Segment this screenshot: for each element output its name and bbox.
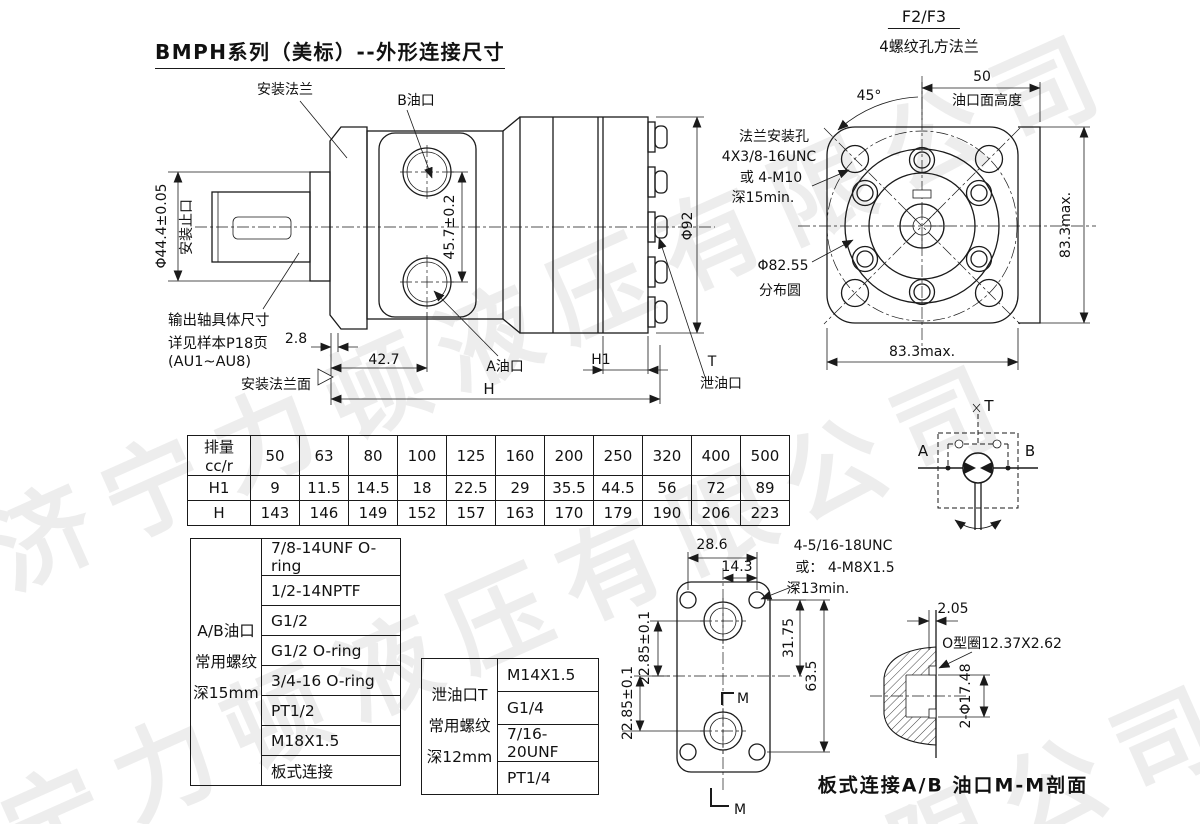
drain-table-header: 泄油口T 常用螺纹 深12mm bbox=[422, 659, 498, 795]
dim-body-diameter: Φ92 bbox=[680, 212, 696, 241]
schematic-port-t: T bbox=[984, 397, 993, 415]
label-plate-thread-3: 深13min. bbox=[787, 578, 850, 598]
label-shaft-note-3: (AU1~AU8) bbox=[168, 354, 251, 370]
end-cover-bolts bbox=[648, 122, 667, 327]
dim-port-face-50: 50 bbox=[973, 69, 991, 85]
label-mount-hole-1: 法兰安装孔 bbox=[739, 126, 809, 146]
drawing-page: 济宁力顿液压有限公司 济宁力顿液压有限公司 济宁力顿液压有限公司 济宁力顿液压有… bbox=[0, 0, 1200, 824]
drawing-canvas bbox=[0, 0, 1200, 824]
table-row: A/B油口 常用螺纹 深15mm 7/8-14UNF O-ring bbox=[191, 539, 401, 576]
dim-port-upper: 22.85±0.1 bbox=[637, 611, 653, 685]
dim-flange-thickness: 2.8 bbox=[285, 331, 307, 347]
table-row: 排量 cc/r 50 63 80 100 125 160 200 250 320… bbox=[188, 436, 790, 476]
drain-port-thread-table: 泄油口T 常用螺纹 深12mm M14X1.5 G1/4 7/16-20UNF … bbox=[421, 658, 599, 795]
label-mount-flange: 安装法兰 bbox=[257, 79, 313, 99]
table-row: H 143 146 149 152 157 163 170 179 190 20… bbox=[188, 501, 790, 526]
label-bolt-circle: 分布圆 bbox=[759, 280, 801, 300]
header-line: 泄油口T bbox=[422, 680, 497, 711]
dim-hole-span: 28.6 bbox=[696, 537, 727, 553]
dim-port-diameter: 2-Φ17.48 bbox=[958, 663, 974, 728]
dim-flange-height: 83.3max. bbox=[1058, 192, 1074, 258]
label-mount-face: 安装法兰面 bbox=[241, 374, 311, 394]
schematic-port-a: A bbox=[918, 442, 928, 460]
label-plate-thread-2: 或： 4-M8X1.5 bbox=[795, 557, 894, 577]
dim-port-lower: 22.85±0.1 bbox=[620, 666, 636, 740]
header-line: 深15mm bbox=[191, 678, 261, 709]
label-mount-hole-2: 4X3/8-16UNC bbox=[722, 149, 816, 165]
dim-bolt-circle: Φ82.55 bbox=[757, 258, 808, 274]
label-drain-port: 泄油口 bbox=[700, 373, 742, 393]
page-title: BMPH系列（美标）--外形连接尺寸 bbox=[155, 36, 505, 69]
label-mount-hole-4: 深15min. bbox=[732, 187, 795, 207]
schematic-port-b: B bbox=[1025, 442, 1035, 460]
header-line: 常用螺纹 bbox=[191, 647, 261, 678]
section-mark-m-bottom: M bbox=[734, 802, 746, 818]
label-plate-thread-1: 4-5/16-18UNC bbox=[794, 538, 893, 554]
dim-port-offset: 14.3 bbox=[721, 559, 752, 575]
table-header: 排量 cc/r bbox=[188, 436, 251, 476]
section-mark-m-top: M bbox=[737, 691, 749, 707]
label-drain-t: T bbox=[708, 354, 717, 370]
dim-port-spacing: 45.7±0.2 bbox=[442, 194, 458, 259]
table-row: H1 9 11.5 14.5 18 22.5 29 35.5 44.5 56 7… bbox=[188, 476, 790, 501]
flange-view-subtitle: 4螺纹孔方法兰 bbox=[879, 36, 979, 57]
row-label: H1 bbox=[188, 476, 251, 501]
displacement-table: 排量 cc/r 50 63 80 100 125 160 200 250 320… bbox=[187, 435, 790, 526]
header-line: 常用螺纹 bbox=[422, 711, 497, 742]
label-port-a: A油口 bbox=[486, 356, 524, 376]
section-caption: 板式连接A/B 油口M-M剖面 bbox=[818, 771, 1088, 798]
label-port-b: B油口 bbox=[397, 90, 435, 110]
dim-port-a-offset: 42.7 bbox=[368, 352, 399, 368]
dim-flange-width: 83.3max. bbox=[889, 344, 955, 360]
label-mount-hole-3: 或 4-M10 bbox=[740, 167, 802, 187]
ab-table-header: A/B油口 常用螺纹 深15mm bbox=[191, 539, 262, 786]
dim-depth-205: 2.05 bbox=[937, 601, 968, 617]
label-shaft-note-1: 输出轴具体尺寸 bbox=[168, 309, 270, 330]
label-oring: O型圈12.37X2.62 bbox=[942, 633, 1062, 653]
label-spigot: 安装止口 bbox=[176, 199, 196, 255]
header-line: 深12mm bbox=[422, 742, 497, 773]
ab-port-thread-table: A/B油口 常用螺纹 深15mm 7/8-14UNF O-ring 1/2-14… bbox=[190, 538, 401, 786]
dim-angle-45: 45° bbox=[857, 88, 882, 104]
flange-view-drawing bbox=[798, 76, 1096, 370]
header-line: A/B油口 bbox=[191, 616, 261, 647]
label-shaft-diameter: Φ44.4±0.05 bbox=[154, 183, 170, 268]
dim-hole-to-center: 31.75 bbox=[781, 618, 797, 658]
dim-h1: H1 bbox=[591, 352, 610, 368]
dim-h: H bbox=[483, 380, 494, 398]
label-port-face-height: 油口面高度 bbox=[952, 90, 1022, 110]
flange-view-title: F2/F3 bbox=[888, 7, 960, 29]
label-shaft-note-2: 详见样本P18页 bbox=[168, 332, 268, 353]
hydraulic-schematic bbox=[918, 404, 1038, 530]
row-label: H bbox=[188, 501, 251, 526]
dim-hole-span-v: 63.5 bbox=[804, 660, 820, 691]
table-row: 泄油口T 常用螺纹 深12mm M14X1.5 bbox=[422, 659, 599, 692]
